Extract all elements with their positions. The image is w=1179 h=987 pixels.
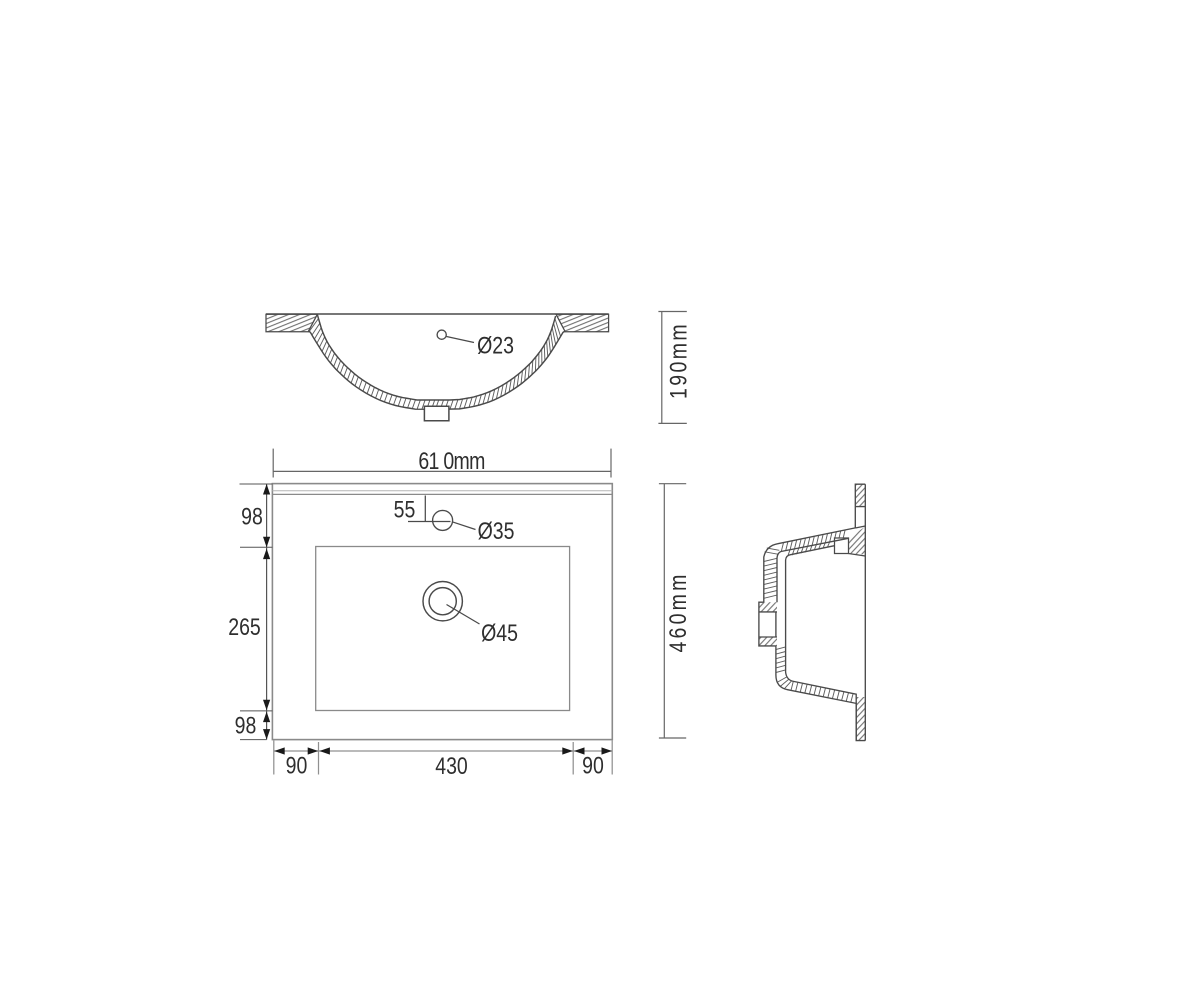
svg-text:Ø35: Ø35 — [478, 517, 515, 544]
svg-text:61 0mm: 61 0mm — [418, 447, 484, 474]
svg-text:265: 265 — [228, 613, 261, 640]
svg-text:Ø23: Ø23 — [477, 332, 514, 359]
svg-text:90: 90 — [582, 752, 604, 779]
svg-text:190mm: 190mm — [665, 322, 692, 399]
svg-text:90: 90 — [286, 752, 308, 779]
svg-text:430: 430 — [435, 752, 468, 779]
svg-text:98: 98 — [235, 712, 257, 739]
svg-text:Ø45: Ø45 — [481, 619, 518, 646]
svg-text:98: 98 — [241, 503, 263, 530]
svg-text:55: 55 — [394, 496, 416, 523]
svg-text:460mm: 460mm — [664, 571, 691, 652]
